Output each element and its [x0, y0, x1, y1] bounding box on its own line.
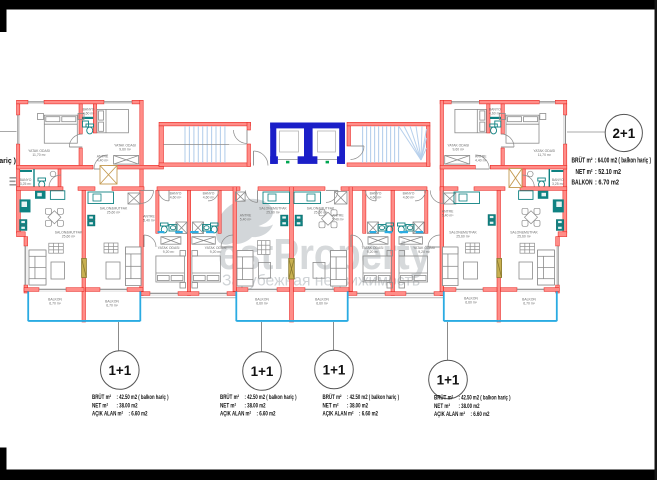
svg-text:9,20 m²: 9,20 m² [163, 250, 175, 254]
svg-text:9,60 m²: 9,60 m² [453, 148, 465, 152]
svg-text:5,40 m²: 5,40 m² [143, 219, 155, 223]
svg-text:25,60 m²: 25,60 m² [314, 211, 328, 215]
svg-text:BALKON: BALKON [572, 180, 593, 187]
svg-text:4,60 m²: 4,60 m² [170, 196, 182, 200]
svg-text:NET m²: NET m² [220, 402, 236, 409]
svg-text:6,60 m²: 6,60 m² [316, 302, 328, 306]
svg-text:AÇIK ALAN m²: AÇIK ALAN m² [220, 411, 251, 418]
svg-text:3,25 m²: 3,25 m² [20, 182, 32, 186]
svg-text:1+1: 1+1 [437, 372, 460, 387]
svg-text:: 38.00 m2: : 38.00 m2 [117, 402, 138, 409]
svg-text:6,60 m²: 6,60 m² [256, 302, 268, 306]
svg-text:BRÜT m²: BRÜT m² [572, 156, 593, 165]
svg-text:BRÜT m²: BRÜT m² [323, 394, 342, 401]
svg-text:BRÜT m²: BRÜT m² [434, 395, 453, 402]
svg-text:6,70 m²: 6,70 m² [523, 302, 535, 306]
svg-text:9,60 m²: 9,60 m² [119, 148, 131, 152]
svg-text:: 38.00 m2: : 38.00 m2 [245, 402, 266, 409]
svg-text:: 6.60 m2: : 6.60 m2 [471, 411, 490, 418]
svg-text:4,60 m²: 4,60 m² [370, 196, 382, 200]
svg-text:2+1: 2+1 [612, 126, 635, 141]
svg-text:1+1: 1+1 [108, 363, 131, 378]
svg-text:4,60 m²: 4,60 m² [403, 196, 415, 200]
svg-text:: 38.00 m2: : 38.00 m2 [459, 403, 480, 410]
svg-text:: 6.60 m2: : 6.60 m2 [359, 411, 378, 418]
svg-text:4,60 m²: 4,60 m² [203, 196, 215, 200]
svg-text:9,20 m²: 9,20 m² [210, 250, 222, 254]
svg-text:: 42.50 m2 ( balkon hariç ): : 42.50 m2 ( balkon hariç ) [459, 395, 511, 402]
svg-text:4,60 m²: 4,60 m² [489, 112, 501, 116]
svg-text:25,60 m²: 25,60 m² [62, 235, 76, 239]
svg-text:25,60 m²: 25,60 m² [266, 211, 280, 215]
svg-text:6,60 m²: 6,60 m² [465, 301, 477, 305]
svg-text:AÇIK ALAN m²: AÇIK ALAN m² [323, 411, 354, 418]
svg-text:: 6.70 m2: : 6.70 m2 [595, 180, 619, 187]
svg-text:: 42.50 m2 ( balkon hariç ): : 42.50 m2 ( balkon hariç ) [245, 394, 297, 401]
svg-text:hariç ): hariç ) [0, 158, 16, 165]
svg-text:4,40 m²: 4,40 m² [475, 159, 487, 163]
svg-text:5,40 m²: 5,40 m² [240, 218, 252, 222]
svg-text:NET m²: NET m² [323, 402, 339, 409]
svg-text:: 6.60 m2: : 6.60 m2 [257, 411, 276, 418]
svg-text:11,70 m²: 11,70 m² [538, 153, 552, 157]
svg-text:NET m²: NET m² [434, 403, 450, 410]
svg-text:4,40 m²: 4,40 m² [97, 159, 109, 163]
svg-text:3,25 m²: 3,25 m² [552, 182, 564, 186]
svg-text:1+1: 1+1 [323, 362, 346, 377]
svg-text:9,20 m²: 9,20 m² [367, 250, 379, 254]
svg-text:9,20 m²: 9,20 m² [418, 250, 430, 254]
svg-text:25,60 m²: 25,60 m² [107, 211, 121, 215]
svg-text:: 38.00 m2: : 38.00 m2 [347, 402, 368, 409]
svg-text:5,40 m²: 5,40 m² [332, 218, 344, 222]
svg-text:AÇIK ALAN m²: AÇIK ALAN m² [434, 411, 465, 418]
svg-text:6,70 m²: 6,70 m² [106, 304, 118, 308]
svg-text:NET m²: NET m² [92, 402, 108, 409]
svg-text:: 6.60 m2: : 6.60 m2 [129, 411, 148, 418]
svg-text:4,60 m²: 4,60 m² [83, 112, 95, 116]
svg-text:1+1: 1+1 [251, 364, 274, 379]
svg-text:11,70 m²: 11,70 m² [32, 153, 46, 157]
svg-text:NET m²: NET m² [576, 169, 593, 176]
svg-text:: 42.50 m2 ( balkon hariç ): : 42.50 m2 ( balkon hariç ) [117, 394, 169, 401]
svg-text:5,40 m²: 5,40 m² [442, 214, 454, 218]
svg-text:: 52.10 m2: : 52.10 m2 [595, 169, 621, 176]
svg-text:25,60 m²: 25,60 m² [456, 235, 470, 239]
svg-text:25,60 m²: 25,60 m² [517, 235, 531, 239]
svg-text:AÇIK ALAN m²: AÇIK ALAN m² [92, 411, 123, 418]
svg-text:: 64.00 m2 ( balkon hariç ): : 64.00 m2 ( balkon hariç ) [595, 158, 651, 165]
svg-text:BRÜT m²: BRÜT m² [220, 394, 239, 401]
svg-text:: 42.50 m2 ( balkon hariç ): : 42.50 m2 ( balkon hariç ) [347, 394, 399, 401]
svg-text:BRÜT m²: BRÜT m² [92, 394, 111, 401]
svg-text:6,70 m²: 6,70 m² [49, 302, 61, 306]
